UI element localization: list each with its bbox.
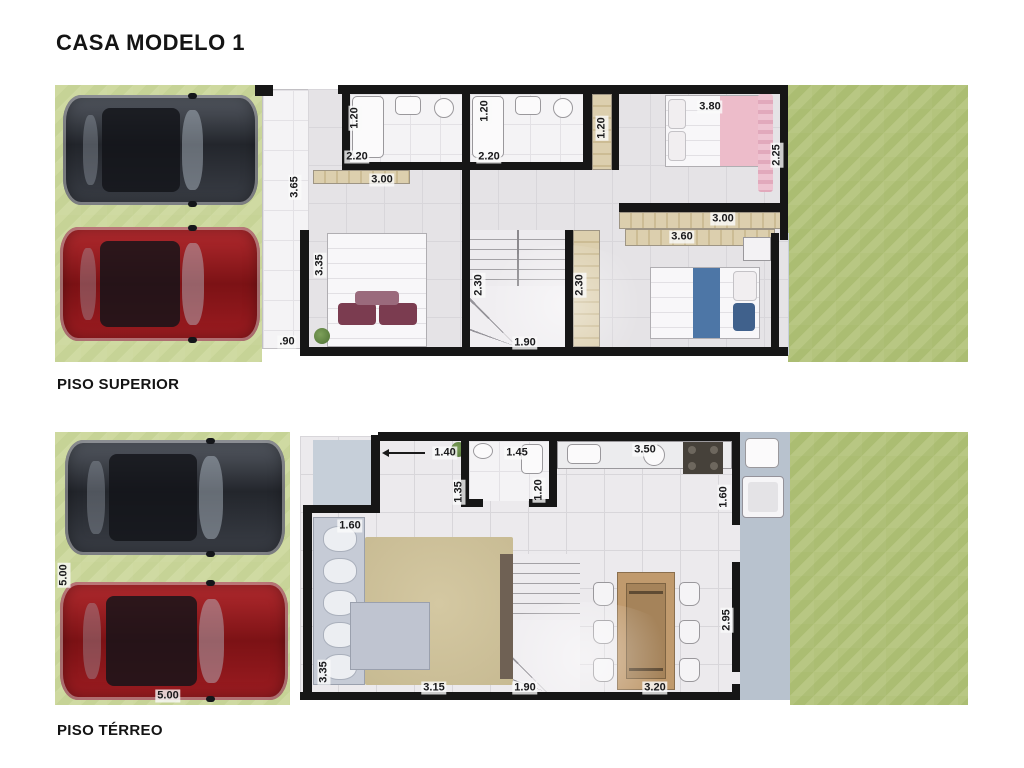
car-dark-top-view [63, 95, 258, 205]
dining-table [617, 572, 675, 690]
dim-label: .90 [277, 336, 296, 349]
wall [338, 85, 788, 94]
dim-label: 1.40 [432, 447, 457, 460]
wall [612, 94, 619, 170]
car-windshield [199, 599, 224, 684]
pillow [668, 131, 686, 161]
dim-label: 1.20 [533, 477, 546, 502]
chair [679, 620, 700, 644]
dim-label: 3.60 [669, 231, 694, 244]
burner [710, 446, 718, 454]
dim-label: 5.00 [58, 562, 71, 587]
kitchen-sink [567, 444, 601, 464]
dim-label: 3.35 [318, 659, 331, 684]
stair-wall [500, 554, 513, 679]
wall [300, 347, 788, 356]
dim-label: 5.00 [155, 690, 180, 703]
dining-table-top [626, 583, 666, 679]
wall [565, 230, 573, 347]
car-mirror [206, 551, 215, 557]
car-windshield [182, 243, 204, 325]
entry-porch [313, 440, 375, 505]
burner [688, 446, 696, 454]
car-roof [102, 108, 180, 192]
dim-label: 3.00 [369, 174, 394, 187]
dim-label: 1.45 [504, 447, 529, 460]
dim-label: 2.95 [721, 607, 734, 632]
maroon-pillow [379, 303, 417, 325]
wall [378, 432, 740, 441]
pillow [733, 271, 757, 301]
dim-label: 3.15 [421, 682, 446, 695]
dim-label: 3.50 [632, 444, 657, 457]
page-title: CASA MODELO 1 [56, 30, 245, 56]
car-roof [100, 241, 180, 328]
toilet [434, 98, 454, 118]
dim-label: 1.35 [453, 479, 466, 504]
wall [583, 94, 592, 170]
dim-label: 3.00 [710, 213, 735, 226]
wall [371, 435, 380, 513]
dim-label: 3.80 [697, 101, 722, 114]
dim-label: 2.25 [771, 142, 784, 167]
stove [683, 442, 723, 474]
plant [314, 328, 330, 344]
wall [549, 435, 557, 507]
service-yard [740, 432, 790, 700]
dim-label: 2.30 [574, 272, 587, 297]
dim-label: 1.60 [718, 484, 731, 509]
door-width-arrow [385, 452, 425, 454]
table-detail [629, 668, 663, 671]
burner [688, 462, 696, 470]
wall [303, 505, 380, 513]
dim-label: 2.30 [473, 272, 486, 297]
wall [255, 85, 273, 96]
sink [395, 96, 421, 115]
wall [619, 203, 788, 212]
car-rear-window [87, 461, 105, 535]
car-mirror [188, 93, 197, 99]
car-roof [109, 454, 197, 541]
car-rear-window [83, 603, 101, 679]
dim-label: 1.20 [596, 115, 609, 140]
bed-left [327, 233, 427, 347]
car-mirror [206, 696, 215, 702]
wall [771, 233, 779, 351]
car-roof [106, 596, 197, 686]
wall [300, 230, 309, 356]
wall [342, 162, 592, 170]
dim-label: 1.20 [349, 105, 362, 130]
car-red-top-view [60, 582, 288, 700]
wall [732, 684, 740, 700]
floor-plan-superior: 1.20 2.20 1.20 2.20 1.20 3.80 2.25 3.65 … [55, 85, 968, 362]
dim-label: 3.35 [314, 252, 327, 277]
floor-plan-terreo: 1.40 1.45 3.50 1.35 1.20 1.60 1.60 5.00 … [55, 432, 968, 705]
table-detail [629, 591, 663, 594]
car-mirror [188, 337, 197, 343]
dim-label: 3.65 [289, 174, 302, 199]
car-windshield [199, 456, 223, 539]
car-rear-window [80, 248, 96, 321]
blue-pillow [733, 303, 755, 331]
caption-piso-terreo: PISO TÉRREO [57, 722, 163, 739]
floor-plan-sheet: CASA MODELO 1 [0, 0, 1024, 768]
chair [679, 582, 700, 606]
dim-label: 1.60 [337, 520, 362, 533]
car-windshield [182, 110, 203, 189]
back-lawn [790, 432, 968, 705]
chair [593, 582, 614, 606]
car-mirror [188, 201, 197, 207]
wall [732, 435, 740, 525]
sink [473, 443, 493, 459]
car-mirror [188, 225, 197, 231]
car-dark-top-view [65, 440, 285, 555]
washing-machine [742, 476, 784, 518]
chair [593, 658, 614, 682]
burner [710, 462, 718, 470]
car-mirror [206, 438, 215, 444]
dim-label: 3.20 [642, 682, 667, 695]
sink [515, 96, 541, 115]
car-rear-window [83, 115, 99, 185]
pillow [668, 99, 686, 129]
dim-label: 2.20 [344, 151, 369, 164]
sofa-chaise [350, 602, 430, 670]
stairs [513, 554, 580, 692]
maroon-pillow [338, 303, 376, 325]
wall [303, 505, 312, 700]
bedroom2-shelf [313, 170, 410, 184]
car-red-top-view [60, 227, 260, 341]
blue-blanket [693, 268, 720, 338]
laundry-tub [745, 438, 779, 468]
sofa-cushion [323, 558, 357, 584]
chair [593, 620, 614, 644]
car-mirror [206, 580, 215, 586]
caption-piso-superior: PISO SUPERIOR [57, 376, 179, 393]
toilet [553, 98, 573, 118]
wardrobe-row-1 [619, 212, 788, 229]
chair [679, 658, 700, 682]
dim-label: 1.20 [479, 98, 492, 123]
dim-label: 2.20 [476, 151, 501, 164]
wall [462, 94, 470, 162]
dim-label: 1.90 [512, 682, 537, 695]
nightstand [743, 237, 771, 261]
wall [462, 170, 470, 347]
back-lawn [788, 85, 968, 362]
maroon-cushion [355, 291, 399, 305]
dim-label: 1.90 [512, 337, 537, 350]
